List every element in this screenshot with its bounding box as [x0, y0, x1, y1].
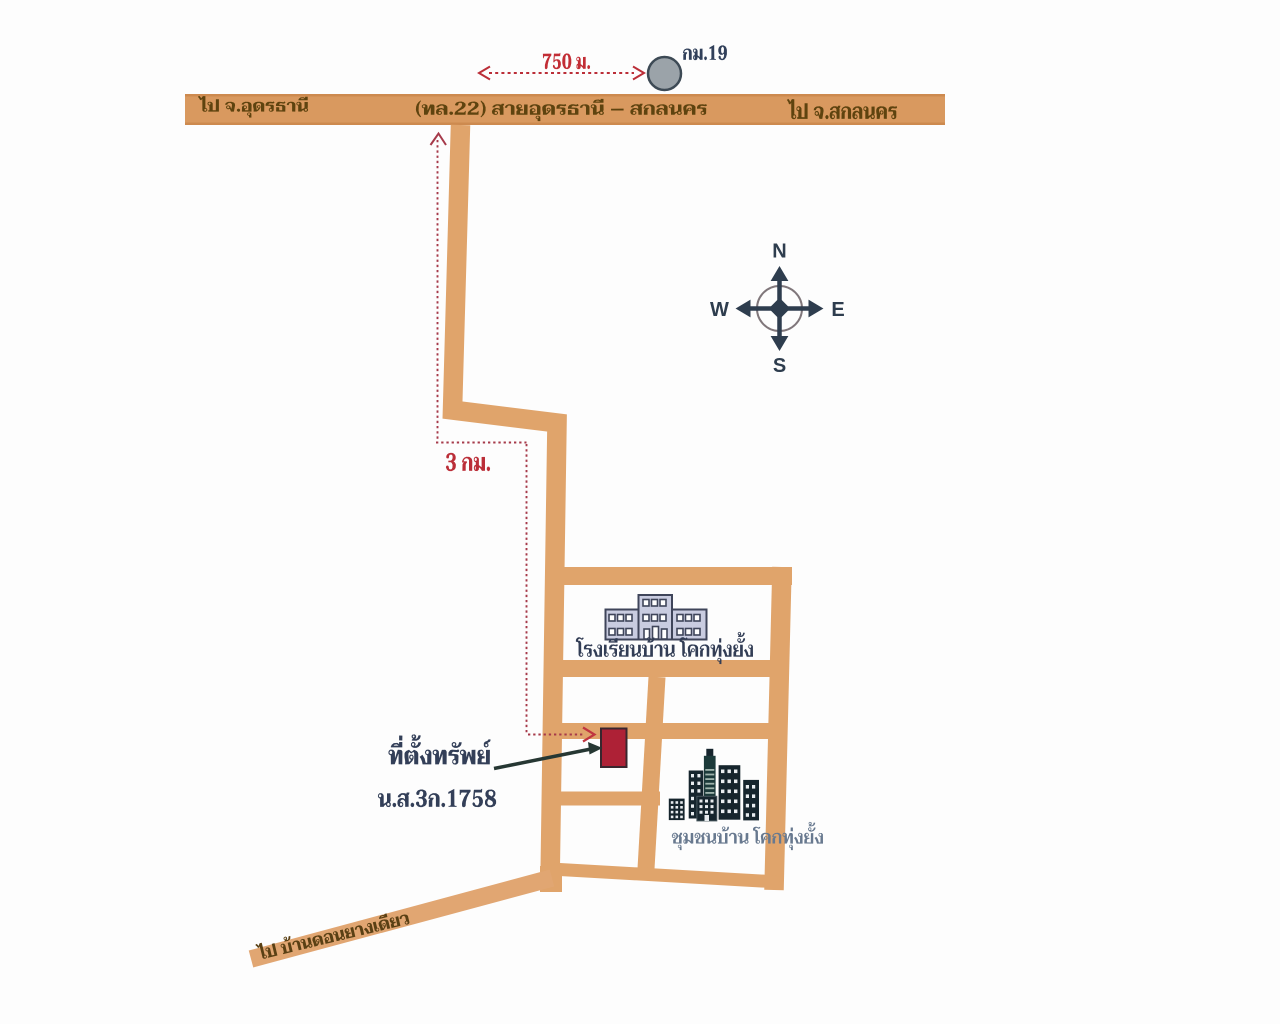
- svg-text:N: N: [772, 241, 786, 263]
- svg-text:E: E: [831, 299, 844, 321]
- svg-text:W: W: [710, 299, 729, 321]
- svg-text:S: S: [773, 355, 786, 377]
